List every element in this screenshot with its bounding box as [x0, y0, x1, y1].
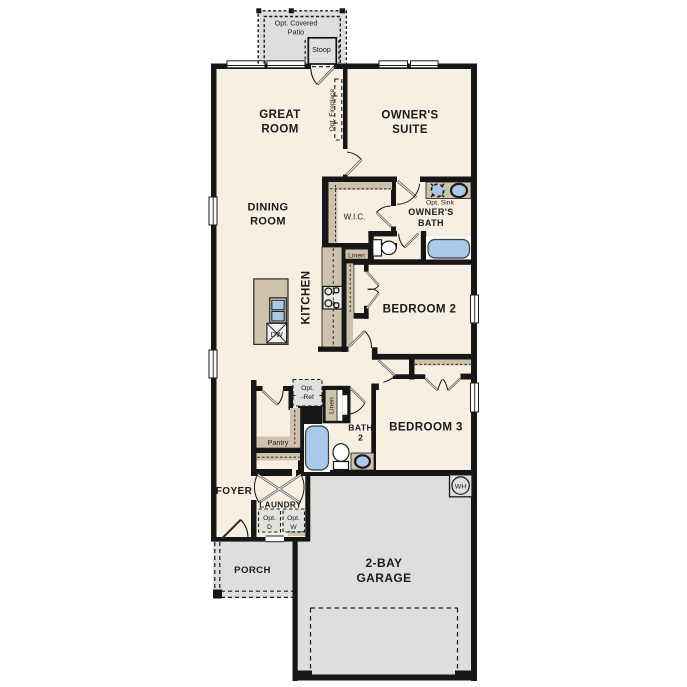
svg-text:W: W: [290, 524, 297, 531]
svg-text:Linen: Linen: [348, 252, 365, 259]
svg-text:Stoop: Stoop: [312, 45, 331, 54]
svg-text:BEDROOM 2: BEDROOM 2: [383, 303, 457, 316]
svg-text:W.I.C.: W.I.C.: [344, 213, 366, 222]
svg-text:BATH: BATH: [418, 218, 444, 228]
svg-text:WH: WH: [455, 483, 466, 490]
svg-text:2-BAY: 2-BAY: [366, 556, 403, 570]
svg-text:Opt. Fireplace: Opt. Fireplace: [329, 89, 336, 132]
svg-text:Opt.: Opt.: [263, 515, 276, 522]
svg-text:ROOM: ROOM: [261, 124, 298, 136]
svg-text:ROOM: ROOM: [250, 216, 286, 228]
svg-text:KITCHEN: KITCHEN: [301, 271, 313, 325]
svg-text:SUITE: SUITE: [392, 124, 428, 136]
svg-text:Pantry: Pantry: [268, 438, 289, 447]
svg-text:LAUNDRY: LAUNDRY: [259, 501, 302, 510]
svg-text:Patio: Patio: [288, 28, 304, 37]
svg-text:PORCH: PORCH: [234, 565, 271, 576]
svg-text:D: D: [267, 524, 272, 531]
svg-text:-Ref: -Ref: [301, 394, 314, 401]
svg-text:OWNER'S: OWNER'S: [381, 110, 438, 122]
svg-text:BATH: BATH: [348, 422, 373, 432]
svg-text:2: 2: [358, 433, 363, 443]
svg-text:GARAGE: GARAGE: [356, 571, 411, 585]
svg-text:BEDROOM 3: BEDROOM 3: [389, 421, 463, 434]
svg-text:DW: DW: [271, 330, 283, 339]
svg-text:Opt.: Opt.: [301, 385, 314, 392]
svg-text:DINING: DINING: [248, 202, 289, 214]
svg-text:Linen: Linen: [329, 397, 336, 414]
svg-text:OWNER'S: OWNER'S: [408, 207, 453, 217]
svg-text:GREAT: GREAT: [259, 109, 300, 121]
svg-text:Opt.: Opt.: [287, 515, 300, 522]
svg-text:Opt. Covered: Opt. Covered: [275, 19, 318, 28]
svg-text:Opt. Sink: Opt. Sink: [426, 200, 455, 207]
svg-text:FOYER: FOYER: [216, 486, 253, 497]
